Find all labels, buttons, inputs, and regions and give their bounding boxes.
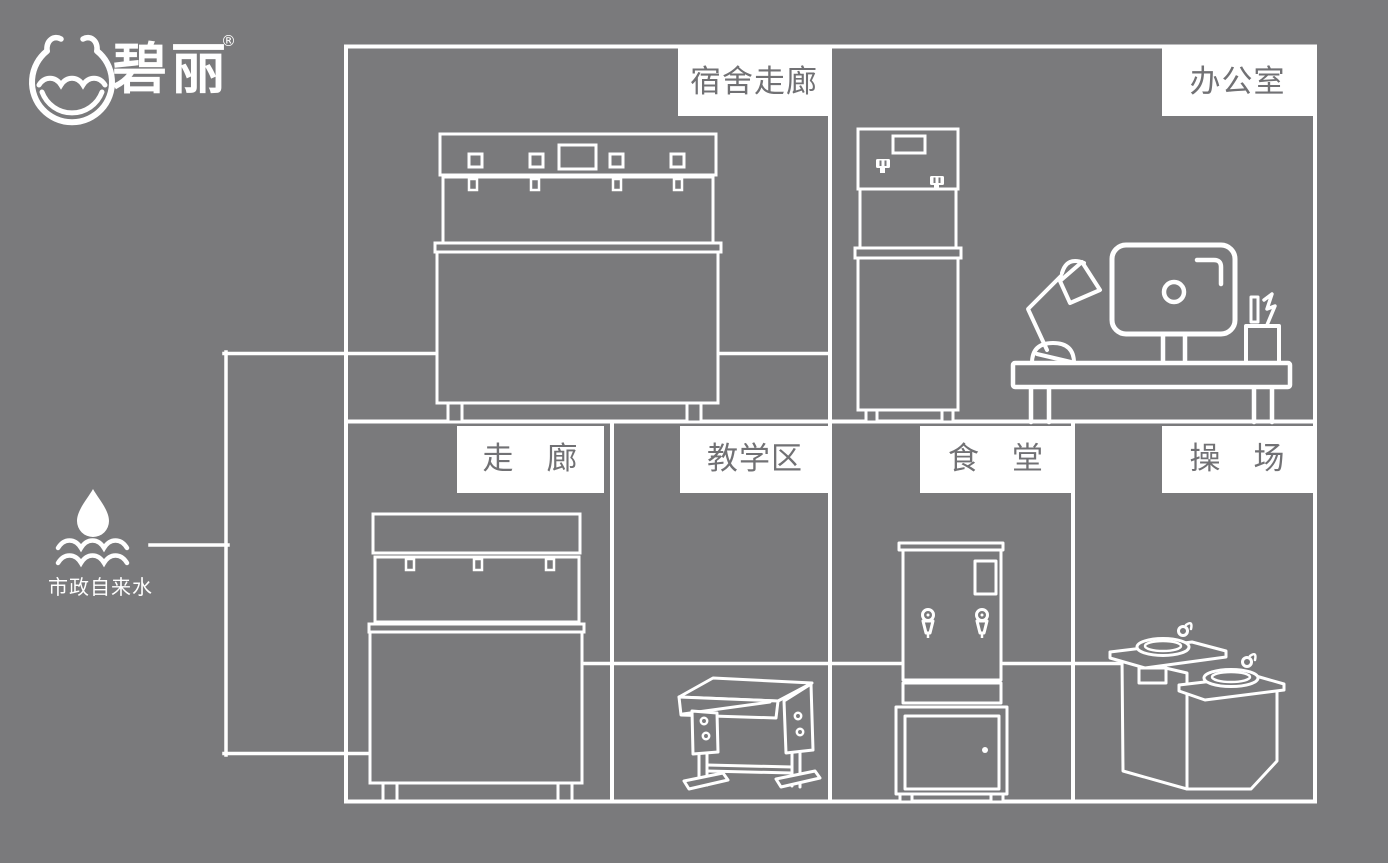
desk-table [1013,363,1290,422]
room-label-text: 走 廊 [483,444,579,475]
bubbler-tap-icon [1179,623,1192,635]
room-label-corridor: 走 廊 [457,426,604,493]
classroom-desk [679,678,820,789]
pen-holder-icon [1246,294,1279,363]
dorm-corridor-multi-tap-dispenser [435,134,721,422]
municipal-water-label: 市政自来水 [48,577,153,597]
room-label-teaching-area: 教学区 [680,426,830,493]
water-drop-with-waves-icon [58,489,127,563]
bubbler-tap-icon [1243,654,1256,666]
monitor-icon [1112,245,1235,361]
registered-trademark-mark: ® [221,34,236,49]
room-label-text: 教学区 [707,444,803,475]
room-label-text: 操 场 [1190,444,1286,475]
office-desk-with-monitor-and-lamp [1013,245,1290,422]
canteen-water-boiler [896,543,1007,802]
desk-lamp-icon [1028,261,1100,363]
brand-logo-text: 碧丽 [112,42,230,97]
room-label-text: 宿舍走廊 [690,67,818,98]
room-label-canteen: 食 堂 [920,426,1072,493]
room-label-playground: 操 场 [1162,426,1313,493]
room-label-text: 办公室 [1190,67,1286,98]
room-label-text: 食 堂 [948,444,1044,475]
playground-two-tier-drinking-fountain [1110,623,1284,789]
room-label-office: 办公室 [1162,48,1313,116]
room-label-dorm-corridor: 宿舍走廊 [678,48,830,116]
corridor-multi-tap-dispenser [369,514,584,801]
office-cabinet-dispenser [855,129,961,422]
poster-background: 碧丽 ® 市政自来水 宿舍走廊 办公室 走 廊 教学区 食 堂 操 场 [0,0,1388,863]
water-cup-logo-mark [32,38,112,123]
